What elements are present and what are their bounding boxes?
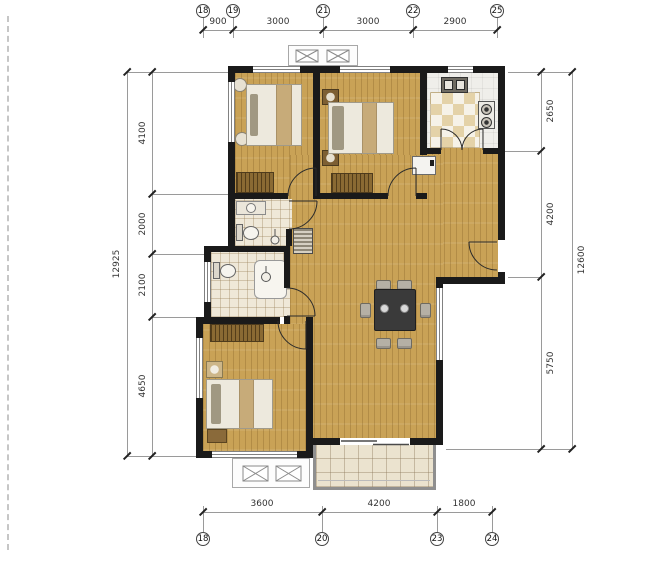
dimension-label: 4100 (138, 111, 148, 155)
door-bedroom1 (288, 168, 316, 196)
dimension-label: 4650 (138, 364, 148, 408)
door-kitchen-double (441, 129, 483, 150)
dimension-label: 2000 (138, 202, 148, 246)
extension-line (152, 194, 228, 195)
grid-bubble-label: 21 (318, 6, 329, 16)
extension-line (446, 449, 572, 450)
shower-head-bathroom1 (271, 229, 279, 244)
extension-line (152, 254, 204, 255)
grid-bubble-label: 19 (228, 6, 239, 16)
grid-bubble-label: 18 (198, 6, 209, 16)
grid-bubble: 24 (485, 532, 499, 546)
grid-bubble: 25 (490, 4, 504, 18)
grid-bubble-label: 20 (317, 534, 328, 544)
grid-bubble: 19 (226, 4, 240, 18)
grid-bubble-label: 22 (408, 6, 419, 16)
plan-symbols-overlay (0, 0, 659, 563)
floorplan-drawing: 18 19 21 22 25 900 3000 3000 2900 18 20 … (0, 0, 659, 563)
grid-bubble: 22 (406, 4, 420, 18)
dimension-label: 12600 (577, 238, 587, 282)
sliding-door-leaves (341, 441, 409, 445)
extension-line (152, 317, 196, 318)
dimension-label: 1800 (442, 499, 486, 509)
dimension-label: 12925 (112, 242, 122, 286)
dimension-label: 3600 (240, 499, 284, 509)
dimension-label: 3000 (256, 17, 300, 27)
grid-bubble-label: 18 (198, 534, 209, 544)
grid-bubble: 18 (196, 4, 210, 18)
grid-bubble-label: 25 (492, 6, 503, 16)
dimension-label: 2900 (433, 17, 477, 27)
door-bedroom2 (388, 168, 416, 196)
door-bathroom2 (287, 288, 315, 316)
ac-unit-box (243, 50, 349, 481)
extension-line (508, 277, 541, 278)
grid-bubble: 18 (196, 532, 210, 546)
dimension-label: 4200 (357, 499, 401, 509)
shower-head-bathroom2 (262, 266, 271, 282)
grid-bubble: 20 (315, 532, 329, 546)
dimension-line-left-outer (127, 72, 128, 456)
dimension-label: 900 (196, 17, 240, 27)
grid-bubble-label: 23 (432, 534, 443, 544)
dimension-line-right-outer (572, 72, 573, 449)
dimension-label: 2650 (546, 89, 556, 133)
dimension-label: 3000 (346, 17, 390, 27)
extension-line (127, 72, 228, 73)
grid-bubble-label: 24 (487, 534, 498, 544)
extension-line (505, 151, 541, 152)
door-entry (469, 242, 497, 270)
door-bedroom3 (278, 321, 306, 349)
grid-bubble: 21 (316, 4, 330, 18)
dimension-line-left-inner (152, 72, 153, 456)
dimension-label: 5750 (546, 341, 556, 385)
dimension-line-bottom (203, 512, 492, 513)
dimension-label: 2100 (138, 263, 148, 307)
dimension-label: 4200 (546, 192, 556, 236)
extension-line (127, 456, 196, 457)
dimension-line-right-inner (541, 72, 542, 449)
grid-bubble: 23 (430, 532, 444, 546)
door-bathroom1 (289, 201, 317, 229)
dimension-line-top (203, 30, 497, 31)
